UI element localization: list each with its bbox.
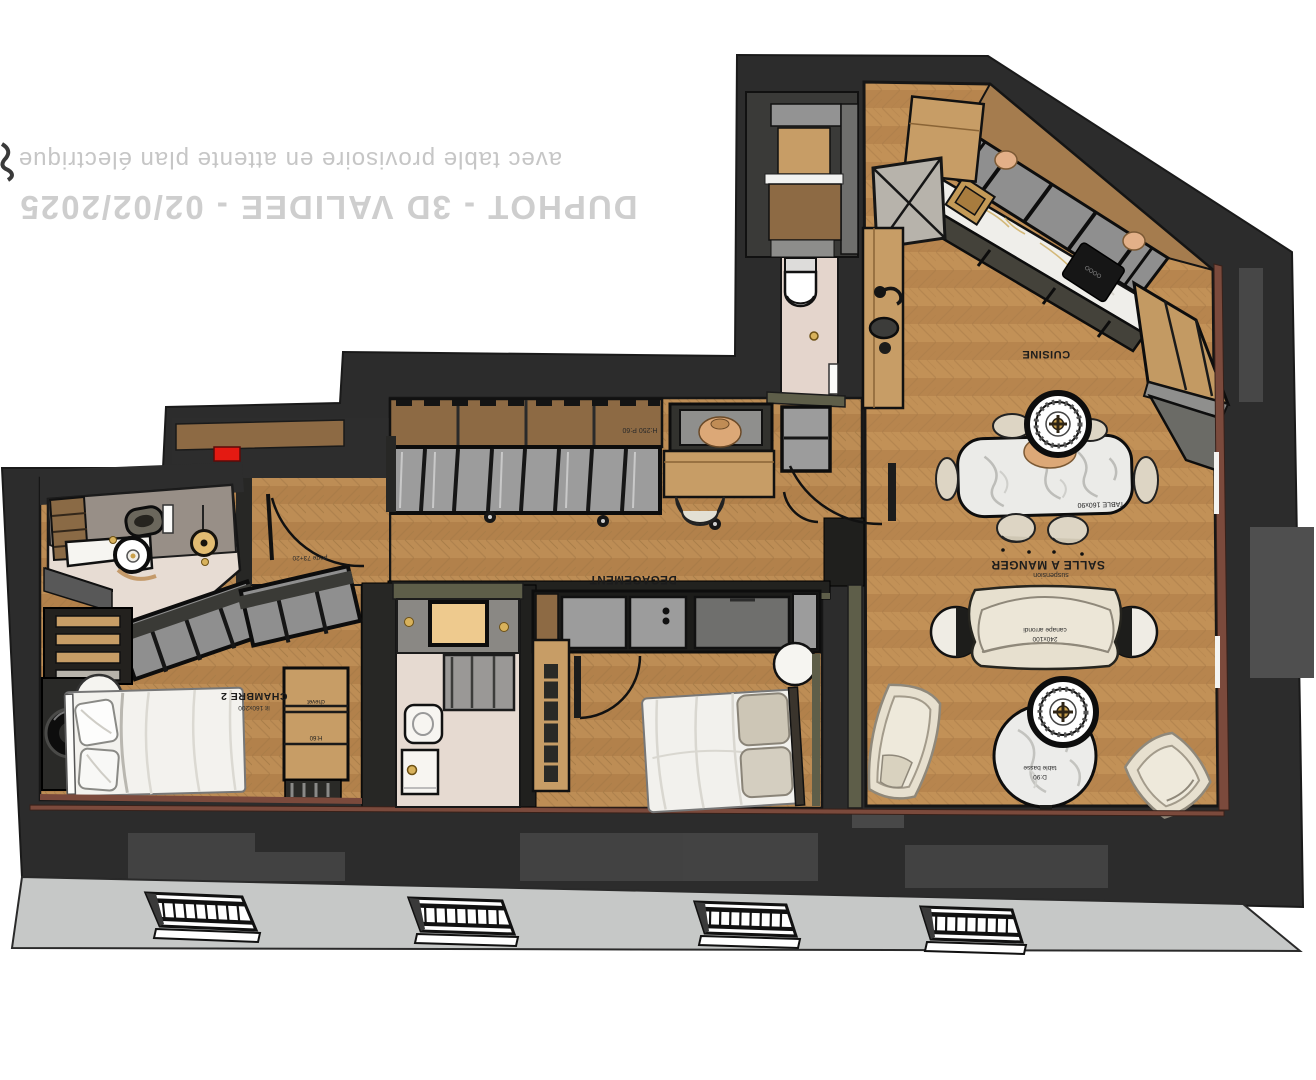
- svg-text:SALLE A MANGER: SALLE A MANGER: [991, 558, 1105, 572]
- svg-text:240x100: 240x100: [1032, 635, 1057, 642]
- svg-text:porte 73+20: porte 73+20: [292, 554, 327, 561]
- svg-text:CUISINE: CUISINE: [1022, 348, 1070, 360]
- svg-text:chevet: chevet: [307, 698, 325, 704]
- svg-text:canape arrondi: canape arrondi: [1023, 626, 1066, 633]
- svg-text:H:250 P:60: H:250 P:60: [622, 426, 657, 433]
- svg-text:DUPHOT - 3D VALIDEE - 02/02/20: DUPHOT - 3D VALIDEE - 02/02/2025: [18, 189, 637, 226]
- svg-text:avec table provisoire en atten: avec table provisoire en attente plan él…: [18, 146, 562, 173]
- svg-text:D:90: D:90: [1033, 773, 1047, 780]
- svg-text:TABLE 160x90: TABLE 160x90: [1077, 500, 1124, 508]
- svg-text:CHAMBRE 2: CHAMBRE 2: [221, 690, 288, 702]
- svg-text:suspension: suspension: [1033, 571, 1069, 578]
- svg-text:table basse: table basse: [1023, 764, 1057, 771]
- svg-text:DEGAGEMENT: DEGAGEMENT: [589, 573, 676, 585]
- svg-text:lit 160x200: lit 160x200: [238, 704, 270, 711]
- svg-text:H:60: H:60: [309, 734, 322, 740]
